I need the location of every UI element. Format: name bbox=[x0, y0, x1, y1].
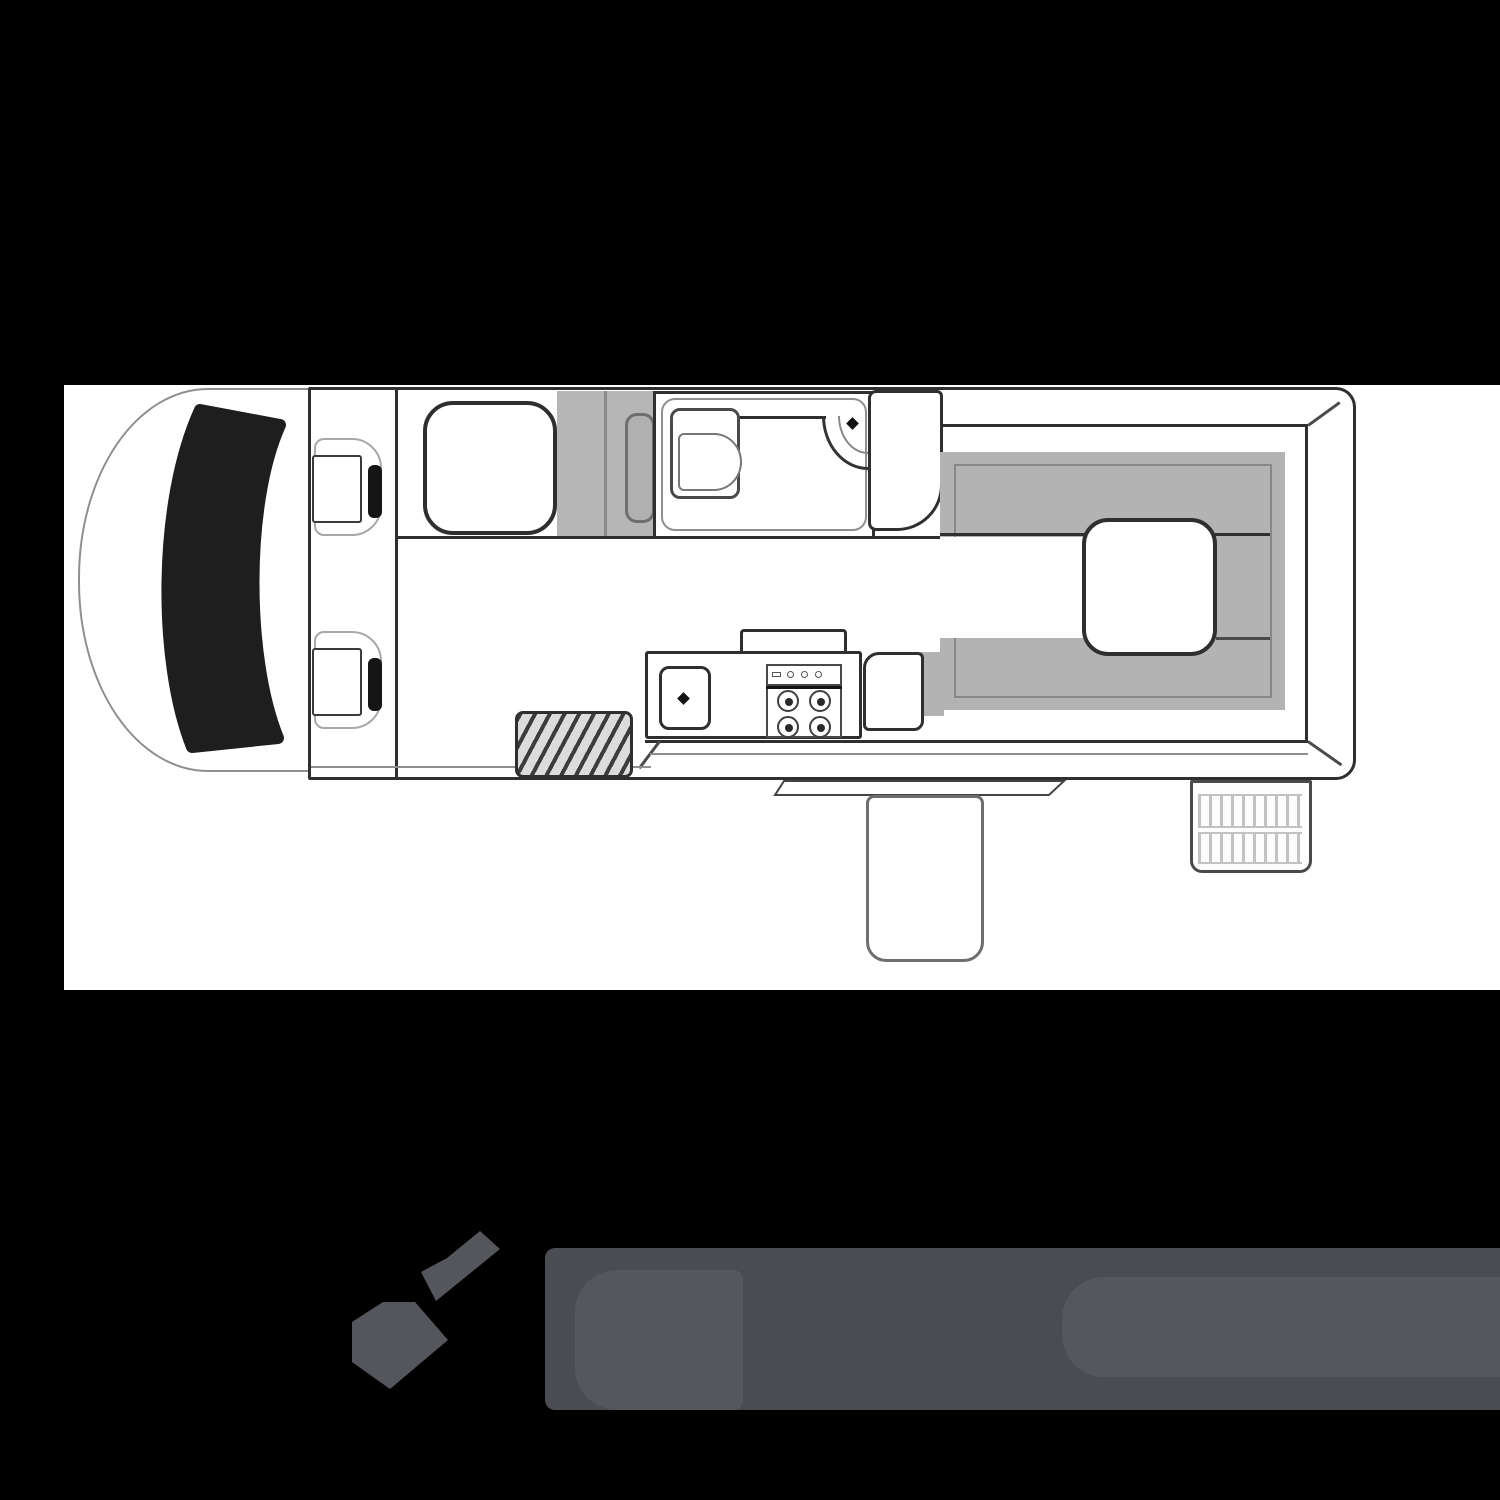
stove-knob-2 bbox=[801, 671, 808, 678]
kitchen-bench-end bbox=[863, 652, 924, 731]
rear-vent-stripes-row2 bbox=[1198, 832, 1302, 864]
rear-vent-stripes-row1 bbox=[1198, 794, 1302, 828]
lounge-aisle-bottom-line bbox=[1216, 637, 1270, 640]
top-row-divider-line bbox=[395, 536, 950, 539]
rear-table bbox=[1082, 518, 1217, 656]
wardrobe-door-panel bbox=[625, 413, 655, 523]
burner-top-left bbox=[777, 690, 799, 712]
burner-bottom-left bbox=[777, 716, 799, 738]
bottom-inner-wall-line bbox=[645, 740, 1308, 743]
toilet-bowl bbox=[678, 433, 742, 491]
rear-inner-wall-line bbox=[1305, 425, 1308, 742]
wardrobe-panel-line bbox=[604, 391, 607, 538]
rear-wardrobe bbox=[868, 390, 943, 531]
brand-logo-letter-blob-2 bbox=[1062, 1277, 1500, 1377]
rear-top-inner-wall-line bbox=[941, 424, 1308, 427]
front-cabinet bbox=[423, 401, 557, 535]
burner-top-right bbox=[809, 690, 831, 712]
stove-knob-3 bbox=[815, 671, 822, 678]
entry-step-hatched bbox=[515, 711, 633, 778]
stove-knob-dash bbox=[772, 672, 781, 677]
stove-knob-1 bbox=[787, 671, 794, 678]
brand-logo-letter-blob-1 bbox=[575, 1270, 743, 1410]
screenshot-stage bbox=[0, 0, 1500, 1500]
burner-bottom-right bbox=[809, 716, 831, 738]
cab-body-divider bbox=[395, 388, 398, 778]
brand-logo-mark bbox=[348, 1228, 508, 1393]
windshield bbox=[140, 402, 290, 754]
exterior-step bbox=[866, 795, 984, 962]
bottom-wall-thin-line bbox=[650, 753, 1308, 755]
